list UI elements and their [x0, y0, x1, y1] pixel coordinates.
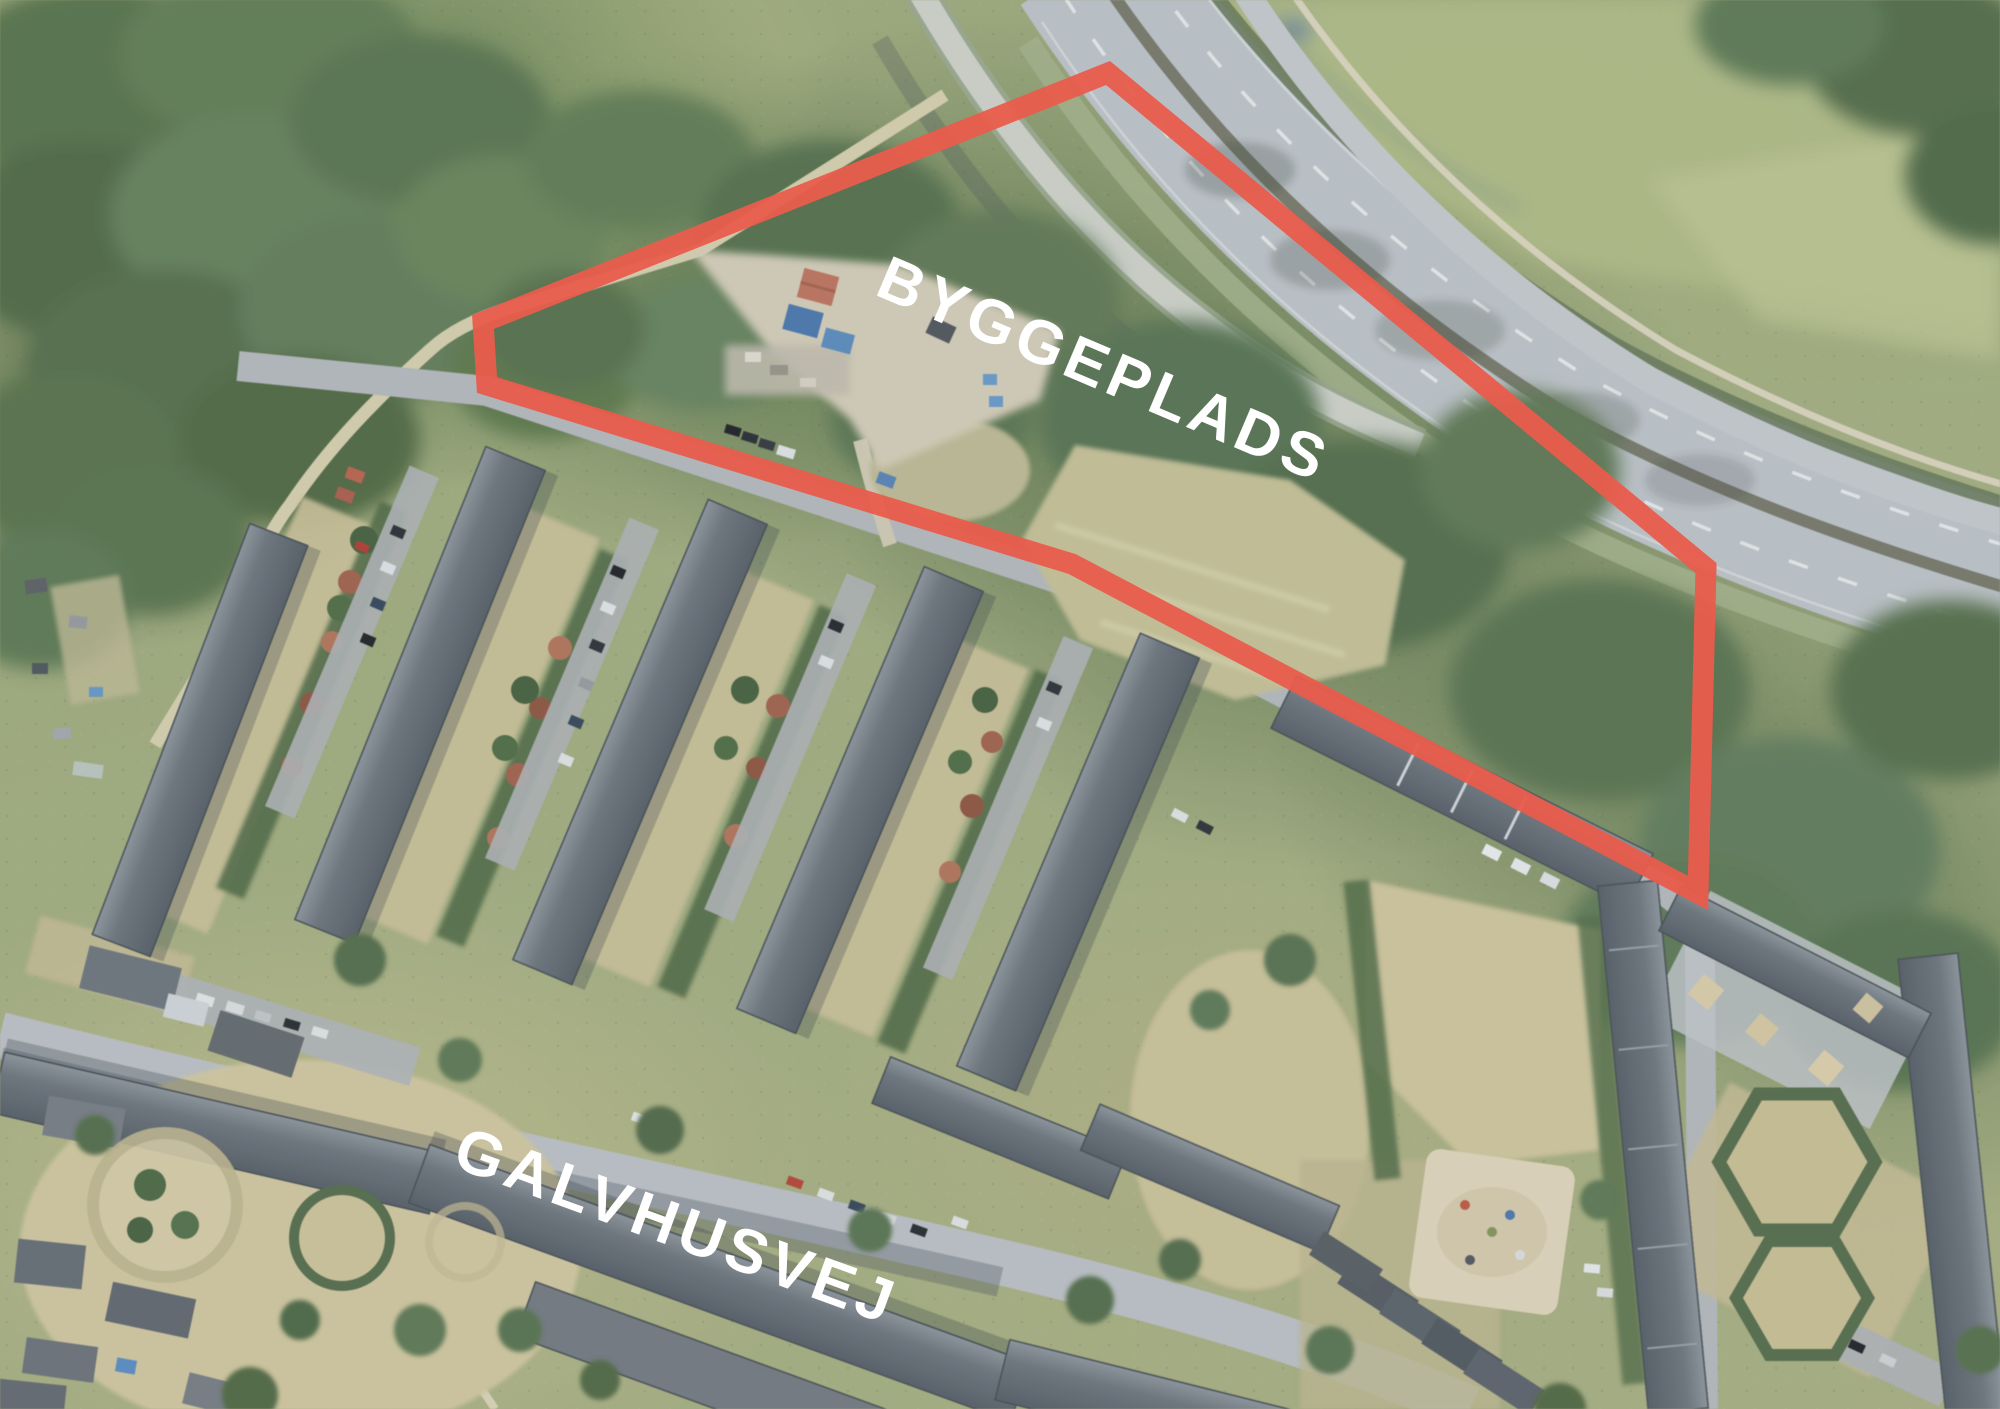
site-outline-polygon [483, 73, 1706, 893]
annotated-aerial-map: BYGGEPLADS GALVHUSVEJ [0, 0, 2000, 1409]
annotation-layer [0, 0, 2000, 1409]
